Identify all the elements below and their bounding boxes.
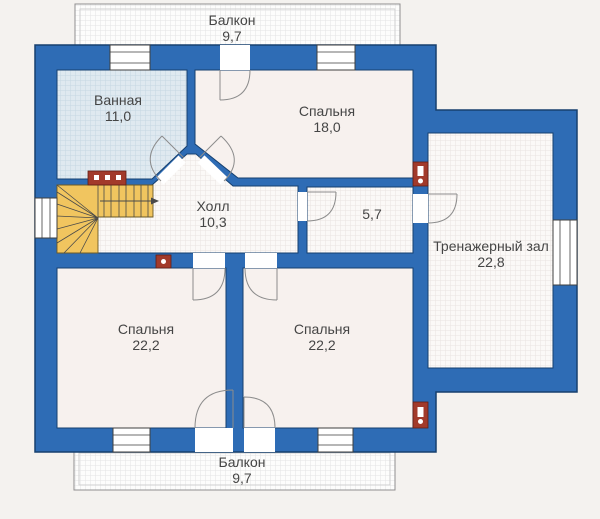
room-area: 10,3	[197, 214, 230, 230]
chimney-bathroom	[88, 171, 126, 185]
room-area: 18,0	[299, 119, 355, 135]
window-top-left	[110, 45, 150, 70]
room-name: Холл	[197, 198, 230, 214]
room-name: Спальня	[294, 321, 350, 337]
room-label-balcony-top: Балкон 9,7	[209, 12, 256, 44]
opening-bedroom-right-door	[245, 253, 277, 268]
room-name: Ванная	[94, 92, 142, 108]
window-top-right	[317, 45, 355, 70]
room-area: 22,2	[294, 337, 350, 353]
room-name: Спальня	[299, 103, 355, 119]
chimney-hall	[156, 255, 171, 268]
room-label-bedroom-left: Спальня 22,2	[118, 321, 174, 353]
chimney-top-right	[413, 162, 428, 186]
room-label-bedroom-top: Спальня 18,0	[299, 103, 355, 135]
window-left	[35, 198, 57, 238]
room-label-gym: Тренажерный зал 22,8	[429, 238, 553, 270]
floor-plan: Балкон 9,7 Ванная 11,0 Спальня 18,0 Холл…	[0, 0, 600, 519]
room-label-small-room: 5,7	[362, 206, 381, 222]
room-area: 11,0	[94, 108, 142, 124]
opening-small-room-door	[298, 192, 307, 221]
room-label-bathroom: Ванная 11,0	[94, 92, 142, 124]
chimney-bottom-right	[413, 402, 428, 428]
opening-balcony-door-top	[220, 45, 250, 70]
room-area: 5,7	[362, 206, 381, 222]
bathroom-floor	[57, 70, 187, 179]
room-area: 9,7	[219, 470, 266, 486]
room-name: Балкон	[219, 454, 266, 470]
opening-bedroom-left-door	[193, 253, 225, 268]
room-area: 22,2	[118, 337, 174, 353]
room-label-bedroom-right: Спальня 22,2	[294, 321, 350, 353]
opening-balcony-door-bottom-left	[195, 428, 233, 452]
room-label-balcony-bottom: Балкон 9,7	[219, 454, 266, 486]
small-room-floor	[307, 187, 413, 253]
room-name: Балкон	[209, 12, 256, 28]
window-bottom-right	[318, 428, 353, 452]
room-label-hall: Холл 10,3	[197, 198, 230, 230]
room-area: 9,7	[209, 28, 256, 44]
window-bottom-left	[113, 428, 150, 452]
window-gym	[553, 220, 577, 285]
opening-gym-door	[413, 194, 428, 223]
room-name: Тренажерный зал	[429, 238, 553, 254]
room-area: 22,8	[429, 254, 553, 270]
room-name: Спальня	[118, 321, 174, 337]
opening-balcony-door-bottom-right	[244, 428, 275, 452]
